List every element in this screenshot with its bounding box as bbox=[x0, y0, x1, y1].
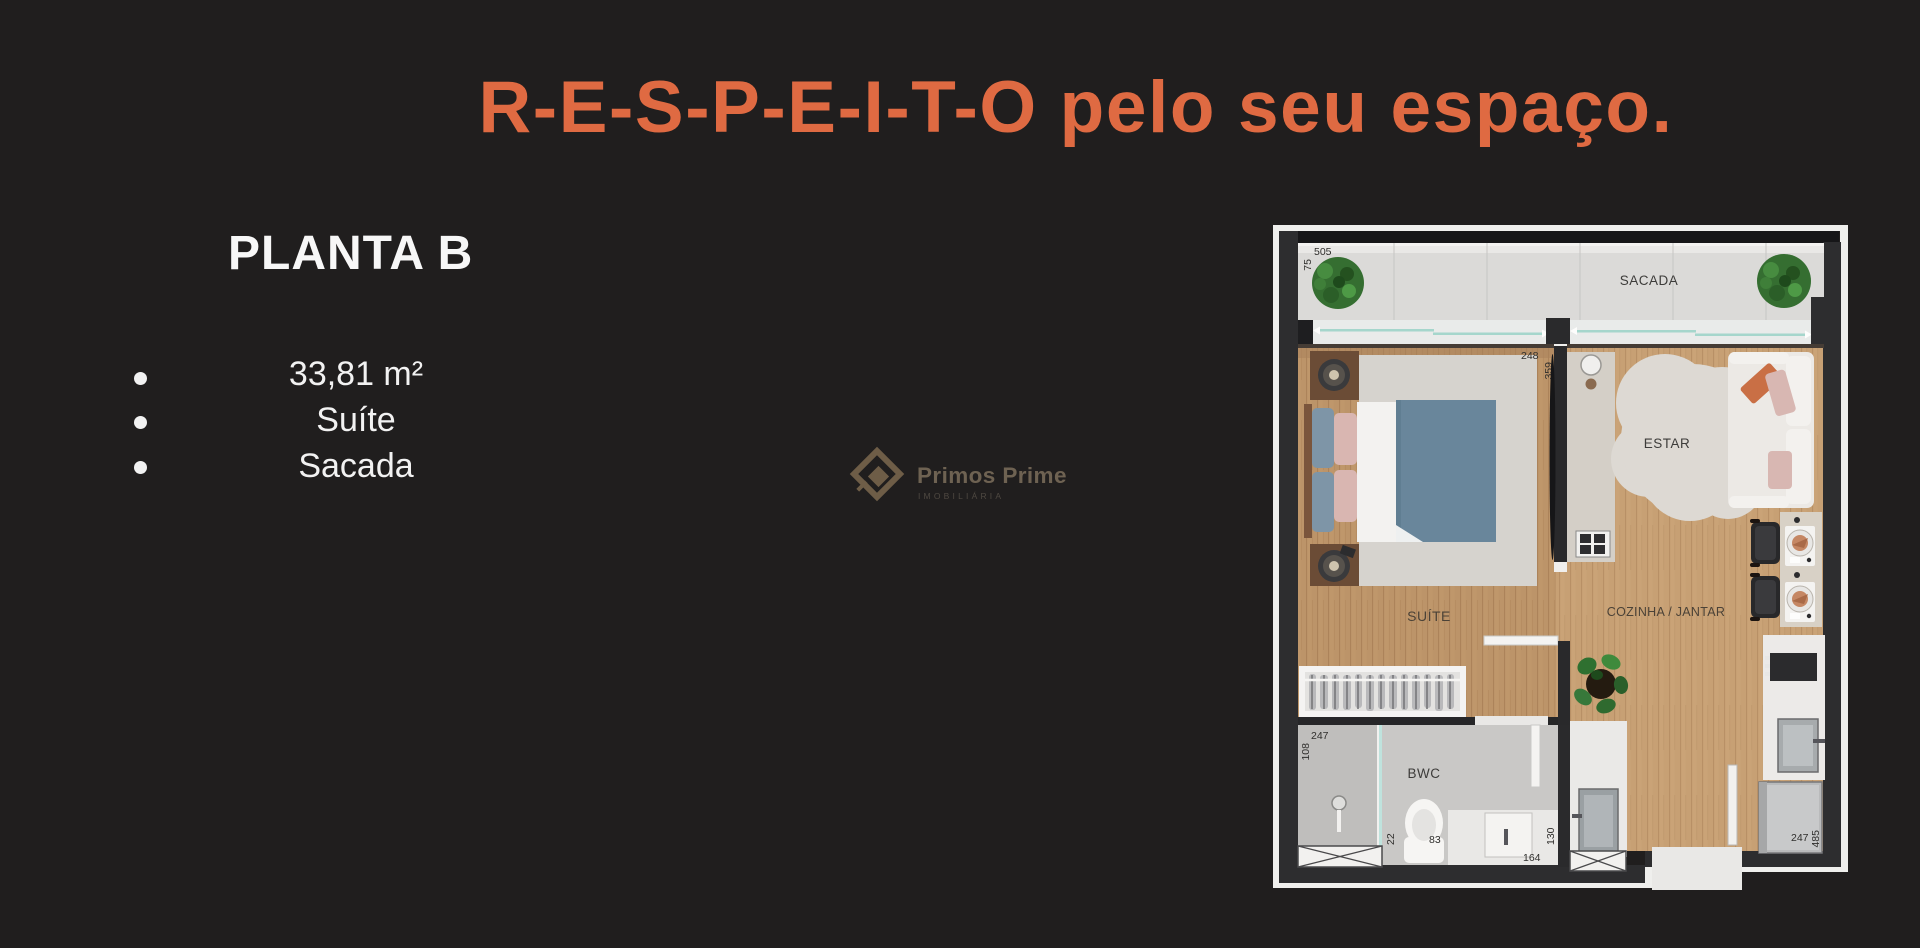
svg-text:COZINHA / JANTAR: COZINHA / JANTAR bbox=[1607, 605, 1725, 619]
svg-text:Primos Prime: Primos Prime bbox=[917, 463, 1067, 488]
svg-text:75: 75 bbox=[1302, 259, 1314, 271]
svg-text:485: 485 bbox=[1810, 830, 1822, 848]
svg-text:SACADA: SACADA bbox=[1620, 273, 1679, 288]
svg-text:IMOBILIÁRIA: IMOBILIÁRIA bbox=[918, 491, 1004, 501]
svg-text:83: 83 bbox=[1429, 834, 1441, 846]
svg-text:164: 164 bbox=[1523, 852, 1541, 864]
svg-text:247: 247 bbox=[1791, 832, 1809, 844]
svg-text:108: 108 bbox=[1300, 743, 1312, 761]
svg-text:247: 247 bbox=[1311, 730, 1329, 742]
svg-text:248: 248 bbox=[1521, 350, 1539, 362]
svg-text:22: 22 bbox=[1385, 833, 1397, 845]
svg-text:505: 505 bbox=[1314, 246, 1332, 258]
svg-text:SUÍTE: SUÍTE bbox=[1407, 608, 1451, 624]
svg-text:ESTAR: ESTAR bbox=[1644, 436, 1691, 451]
svg-text:BWC: BWC bbox=[1408, 766, 1441, 781]
svg-text:130: 130 bbox=[1545, 827, 1557, 845]
